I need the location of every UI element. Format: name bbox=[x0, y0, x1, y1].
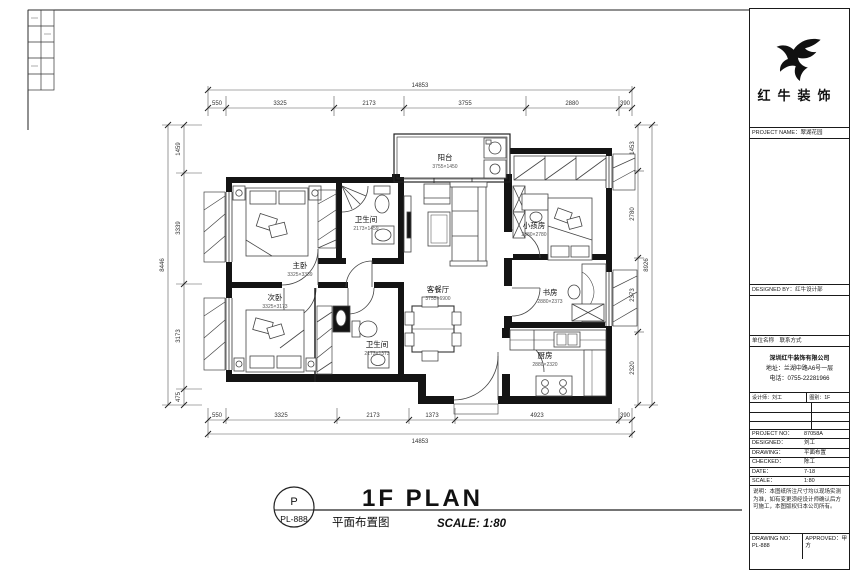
svg-text:3755×6900: 3755×6900 bbox=[425, 296, 450, 302]
sheet-border bbox=[28, 10, 749, 130]
designer-row: 设计师：刘工 图别：1F bbox=[750, 392, 849, 402]
svg-text:2320: 2320 bbox=[630, 361, 636, 375]
field-project-no: PROJECT NO：87058A bbox=[750, 429, 849, 438]
washing-machine bbox=[484, 138, 506, 178]
svg-text:2173×1459: 2173×1459 bbox=[353, 226, 378, 232]
field-date: DATE：7-18 bbox=[750, 467, 849, 476]
svg-text:2880×2373: 2880×2373 bbox=[537, 299, 562, 305]
svg-text:8446: 8446 bbox=[160, 258, 166, 272]
svg-text:3173: 3173 bbox=[176, 329, 182, 343]
empty-box-medium bbox=[750, 295, 849, 335]
unit-row: 单位名称 联系方式 bbox=[750, 335, 849, 346]
room-label-living: 客餐厅 bbox=[427, 284, 450, 294]
svg-text:8926: 8926 bbox=[644, 258, 650, 272]
svg-text:3325: 3325 bbox=[273, 101, 287, 107]
empty-box-large bbox=[750, 138, 849, 284]
signature-grid bbox=[750, 402, 849, 429]
svg-text:2373: 2373 bbox=[630, 288, 636, 302]
master-bed bbox=[233, 186, 321, 256]
dimension-texts: 14853 550 3325 2173 3755 2880 390 550 33… bbox=[160, 83, 650, 445]
children-room-furniture bbox=[513, 156, 606, 260]
drawing-title: P PL-888 1F PLAN 平面布置图 SCALE: 1:80 bbox=[274, 485, 742, 530]
approved-cell: APPROVED：甲方 bbox=[802, 534, 849, 559]
svg-text:550: 550 bbox=[212, 413, 223, 419]
field-checked: CHECKED：陈工 bbox=[750, 457, 849, 466]
svg-text:1453: 1453 bbox=[630, 141, 636, 155]
notes: 说明：本图纸所注尺寸均以现场实测为准，如有变更须经设计师确认后方可施工，本图版权… bbox=[750, 485, 849, 533]
title-block: 红牛装饰 PROJECT NAME：翠湖花园 DESIGNED BY：红牛设计部… bbox=[749, 8, 850, 570]
revision-table bbox=[28, 10, 54, 90]
svg-text:390: 390 bbox=[620, 101, 631, 107]
drawing-sheet: { "plan": { "rooms": [ {"name": "阳台", "s… bbox=[0, 0, 860, 580]
room-label-study: 书房 bbox=[543, 287, 558, 297]
company-name: 深圳红牛装饰有限公司 bbox=[750, 356, 849, 363]
bedroom2-bed bbox=[234, 310, 316, 372]
title-bubble-number: PL-888 bbox=[280, 514, 308, 524]
title-scale: SCALE: 1:80 bbox=[437, 518, 507, 530]
svg-text:2780: 2780 bbox=[630, 207, 636, 221]
svg-text:475: 475 bbox=[176, 391, 182, 402]
bottom-cells: DRAWING NO：PL-888 APPROVED：甲方 bbox=[750, 533, 849, 559]
title-bubble-letter: P bbox=[290, 496, 297, 508]
svg-text:3339: 3339 bbox=[176, 221, 182, 235]
svg-text:390: 390 bbox=[620, 413, 631, 419]
svg-text:3755: 3755 bbox=[458, 101, 472, 107]
dining-set bbox=[405, 297, 461, 361]
living-furniture bbox=[404, 182, 487, 266]
floor-plan: 阳台 主卧 卫生间 客餐厅 次卧 卫生间 小孩房 书房 厨房 3755×1450… bbox=[0, 0, 750, 580]
room-label-bath2: 卫生间 bbox=[366, 339, 389, 349]
svg-text:550: 550 bbox=[212, 101, 223, 107]
svg-text:3325: 3325 bbox=[274, 413, 288, 419]
room-label-children: 小孩房 bbox=[523, 220, 546, 230]
designed-by-row: DESIGNED BY：红牛设计部 bbox=[750, 284, 849, 295]
svg-text:2173×1373: 2173×1373 bbox=[364, 351, 389, 357]
svg-text:3325×3339: 3325×3339 bbox=[287, 272, 312, 278]
svg-text:14853: 14853 bbox=[412, 439, 429, 445]
kitchen-fixtures bbox=[510, 330, 606, 396]
bird-logo-icon bbox=[768, 34, 832, 84]
svg-text:2880×2320: 2880×2320 bbox=[532, 362, 557, 368]
company-info: 深圳红牛装饰有限公司 地址：兰湖中路A6号一层 电话：0755-22281966 bbox=[750, 346, 849, 392]
room-label-master: 主卧 bbox=[293, 260, 308, 270]
svg-text:2173: 2173 bbox=[366, 413, 380, 419]
drawing-no-cell: DRAWING NO：PL-888 bbox=[750, 534, 802, 559]
company-address: 地址：兰湖中路A6号一层 bbox=[750, 366, 849, 373]
room-label-balcony: 阳台 bbox=[438, 152, 453, 162]
svg-text:2173: 2173 bbox=[362, 101, 376, 107]
field-scale: SCALE：1:80 bbox=[750, 476, 849, 485]
room-label-kitchen: 厨房 bbox=[538, 350, 553, 360]
study-furniture bbox=[568, 264, 606, 322]
room-label-bath1: 卫生间 bbox=[355, 214, 378, 224]
svg-text:2880: 2880 bbox=[565, 101, 579, 107]
svg-text:3755×1450: 3755×1450 bbox=[432, 164, 457, 170]
svg-text:2880×2780: 2880×2780 bbox=[521, 232, 546, 238]
svg-text:3325×3173: 3325×3173 bbox=[262, 304, 287, 310]
svg-text:1459: 1459 bbox=[176, 142, 182, 156]
company-phone: 电话：0755-22281966 bbox=[750, 376, 849, 383]
title-main: 1F PLAN bbox=[362, 485, 483, 512]
brand-name: 红牛装饰 bbox=[758, 88, 842, 103]
field-drawing: DRAWING：平面布置 bbox=[750, 448, 849, 457]
field-designed: DESIGNED：刘工 bbox=[750, 438, 849, 447]
title-sub-cn: 平面布置图 bbox=[332, 516, 390, 529]
svg-text:4923: 4923 bbox=[530, 413, 544, 419]
room-label-bedroom2: 次卧 bbox=[268, 292, 283, 302]
company-logo: 红牛装饰 bbox=[750, 9, 849, 127]
svg-text:1373: 1373 bbox=[425, 413, 439, 419]
project-name-row: PROJECT NAME：翠湖花园 bbox=[750, 127, 849, 138]
svg-text:14853: 14853 bbox=[412, 83, 429, 89]
